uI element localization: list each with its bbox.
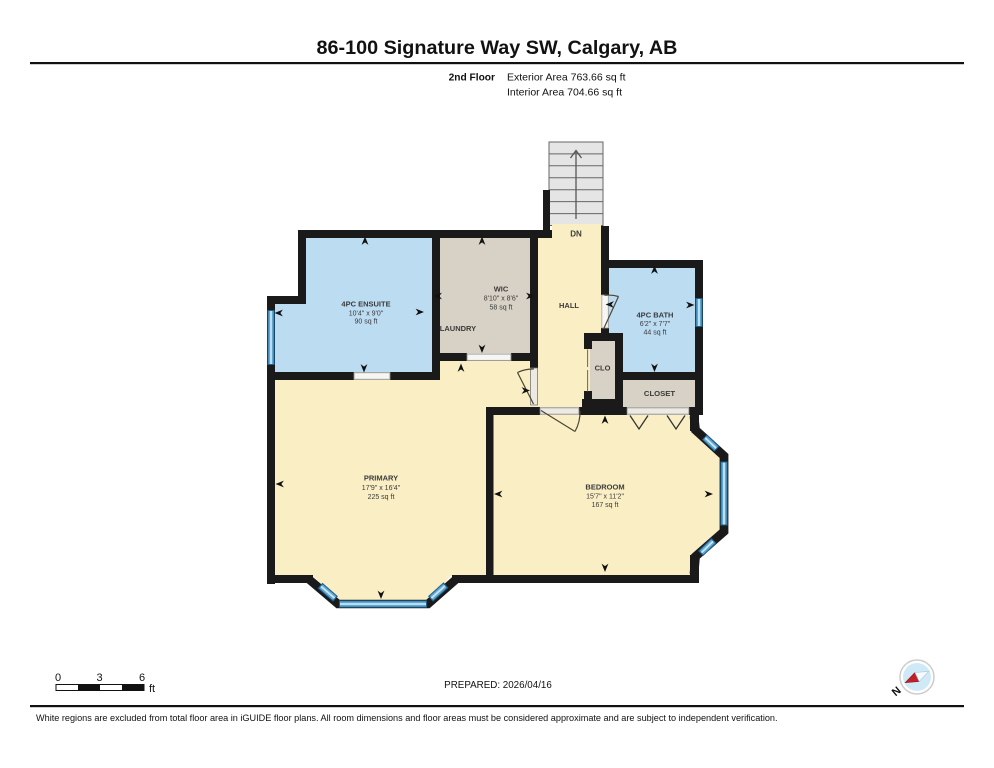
svg-text:N: N [890, 685, 904, 699]
svg-text:ft: ft [149, 683, 155, 695]
svg-text:LAUNDRY: LAUNDRY [440, 324, 476, 333]
svg-text:3: 3 [96, 672, 102, 684]
svg-text:90 sq ft: 90 sq ft [355, 319, 378, 326]
svg-text:44 sq ft: 44 sq ft [644, 330, 667, 337]
svg-text:DN: DN [570, 230, 582, 239]
svg-text:17'9" x 16'4": 17'9" x 16'4" [362, 485, 401, 492]
svg-text:BEDROOM: BEDROOM [585, 483, 624, 492]
svg-text:225 sq ft: 225 sq ft [368, 494, 395, 501]
svg-text:15'7" x 11'2": 15'7" x 11'2" [586, 494, 624, 501]
svg-text:2nd Floor: 2nd Floor [449, 73, 495, 84]
svg-text:10'4" x 9'0": 10'4" x 9'0" [349, 311, 384, 318]
svg-text:86-100 Signature Way SW, Calga: 86-100 Signature Way SW, Calgary, AB [317, 37, 678, 59]
svg-text:58 sq ft: 58 sq ft [490, 305, 513, 312]
svg-text:Interior Area 704.66 sq ft: Interior Area 704.66 sq ft [507, 87, 622, 99]
svg-text:PRIMARY: PRIMARY [364, 474, 398, 483]
svg-text:CLO: CLO [595, 364, 611, 373]
svg-text:WIC: WIC [494, 285, 509, 294]
svg-text:167 sq ft: 167 sq ft [592, 502, 619, 509]
svg-text:Exterior Area 763.66 sq ft: Exterior Area 763.66 sq ft [507, 72, 626, 84]
svg-text:HALL: HALL [559, 301, 579, 310]
svg-text:6'2" x 7'7": 6'2" x 7'7" [640, 321, 671, 328]
svg-text:8'10" x 8'6": 8'10" x 8'6" [484, 296, 519, 303]
svg-text:CLOSET: CLOSET [644, 389, 675, 398]
svg-text:White regions are excluded fro: White regions are excluded from total fl… [36, 713, 778, 723]
svg-text:4PC BATH: 4PC BATH [637, 311, 674, 320]
svg-text:6: 6 [139, 672, 145, 684]
svg-text:0: 0 [55, 672, 61, 684]
svg-text:4PC ENSUITE: 4PC ENSUITE [341, 300, 390, 309]
svg-text:PREPARED: 2026/04/16: PREPARED: 2026/04/16 [444, 680, 552, 691]
